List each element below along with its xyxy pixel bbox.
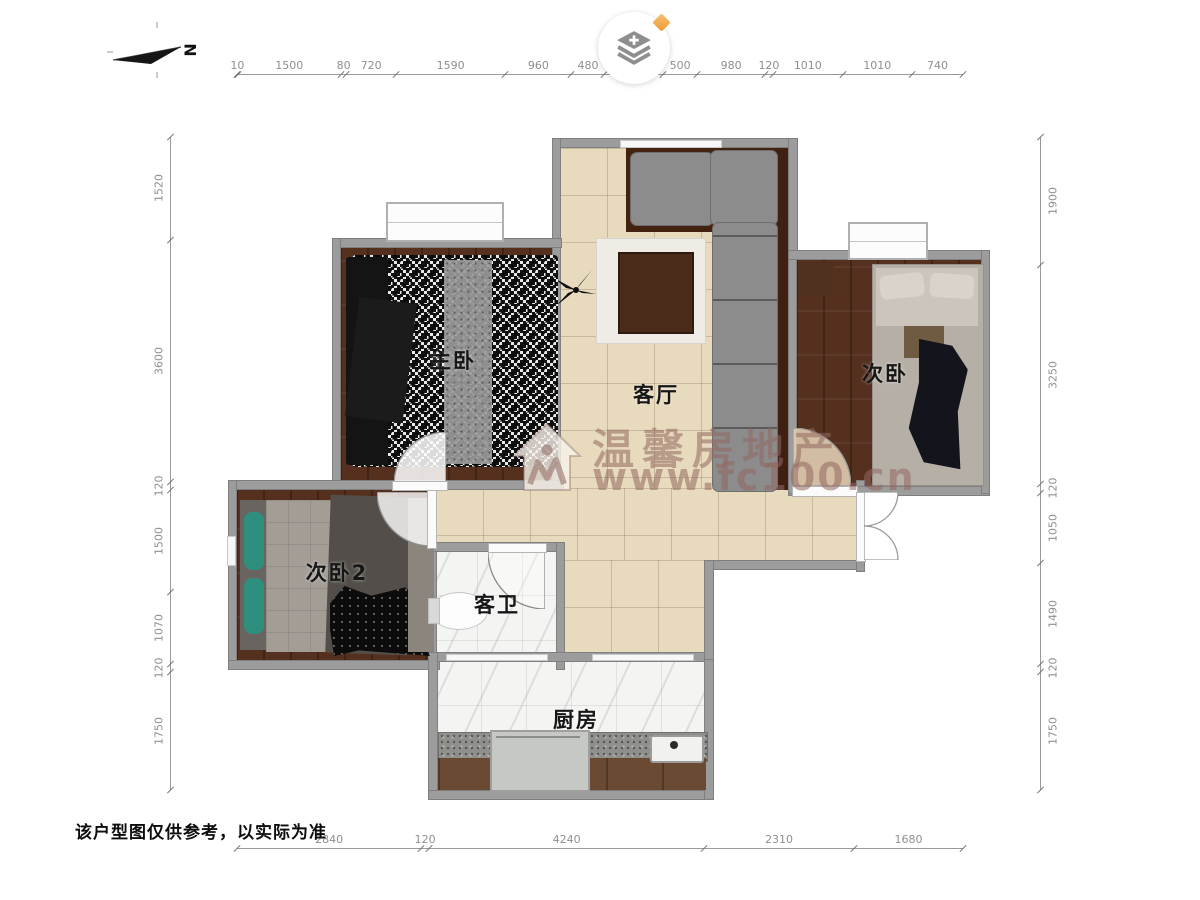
window: [592, 654, 694, 661]
pillow: [244, 512, 264, 570]
bedroom2-nightstand: [798, 262, 834, 296]
dimension-tick: [959, 845, 966, 852]
window: [227, 536, 236, 566]
window: [620, 140, 722, 148]
wall: [704, 560, 714, 660]
window: [848, 222, 928, 260]
coffee-table: [618, 252, 694, 334]
dimension-label: 3250: [1047, 361, 1060, 389]
dimension-label: 4240: [553, 833, 581, 846]
dimension-label: 1490: [1047, 600, 1060, 628]
room-label-bedroom3: 次卧2: [306, 557, 369, 587]
sofa-section: [630, 152, 714, 226]
door-arc-master: [394, 432, 446, 484]
watermark-house-icon: [508, 420, 586, 496]
dimension-label: 500: [670, 59, 691, 72]
dimension-label: 120: [1047, 657, 1060, 678]
dimension-label: 120: [758, 59, 779, 72]
dimension-label: 2310: [765, 833, 793, 846]
room-label-living-room: 客厅: [633, 379, 679, 409]
dimension-label: 10: [230, 59, 244, 72]
door-arc-bedroom3: [377, 492, 431, 546]
watermark-site: www.fc100.cn: [592, 458, 916, 498]
dimension-label: 1750: [1047, 717, 1060, 745]
room-label-bedroom2: 次卧: [862, 358, 908, 388]
wall: [332, 238, 341, 488]
room-label-master-bedroom: 主卧: [430, 345, 476, 375]
dimension-label: 120: [1047, 478, 1060, 499]
floor-plan-canvas: 温馨房地产 www.fc100.cn 主卧 客厅 次卧 次卧2 客卫 厨房 10…: [0, 0, 1200, 900]
dimension-label: 720: [361, 59, 382, 72]
dimension-label: 3600: [153, 347, 166, 375]
dimension-label: 1520: [153, 174, 166, 202]
kitchen-sink: [650, 735, 704, 763]
room-label-kitchen: 厨房: [553, 704, 599, 734]
svg-text:N: N: [181, 43, 200, 56]
pillow: [879, 272, 925, 300]
dimension-line-right: 19003250120105014901201750: [1036, 137, 1060, 790]
kitchen-appliance-handle: [496, 736, 580, 738]
wall: [228, 480, 237, 670]
window: [446, 654, 548, 661]
dimension-label: 1500: [153, 527, 166, 555]
wall: [788, 138, 798, 256]
entry-double-door-arc: [864, 526, 899, 560]
dimension-label: 980: [721, 59, 742, 72]
wall: [428, 652, 438, 800]
kitchen-faucet: [670, 741, 678, 749]
dimension-label: 1500: [275, 59, 303, 72]
dimension-label: 120: [153, 476, 166, 497]
dimension-label: 120: [415, 833, 436, 846]
dimension-line-bottom: 2840120424023101680: [237, 832, 963, 854]
wall: [228, 660, 440, 670]
dimension-label: 120: [153, 657, 166, 678]
dimension-label: 740: [927, 59, 948, 72]
dimension-label: 1050: [1047, 514, 1060, 542]
dimension-label: 1590: [437, 59, 465, 72]
window: [386, 202, 504, 242]
dimension-label: 1900: [1047, 187, 1060, 215]
dimension-label: 1070: [153, 614, 166, 642]
dimension-label: 1680: [895, 833, 923, 846]
pillow: [929, 272, 975, 299]
kitchen-appliance: [490, 730, 590, 792]
dimension-label: 1010: [794, 59, 822, 72]
wall: [704, 560, 865, 570]
door-leaf: [427, 490, 437, 549]
room-label-guest-bathroom: 客卫: [474, 589, 520, 619]
dimension-label: 1010: [863, 59, 891, 72]
dimension-tick: [167, 786, 174, 793]
ceiling-fan-icon: [552, 266, 600, 314]
door-leaf: [392, 481, 448, 491]
dining-nook-floor: [564, 560, 706, 660]
toilet-tank: [428, 598, 440, 624]
layers-plus-icon: [615, 29, 653, 67]
dimension-label: 960: [528, 59, 549, 72]
dimension-label: 480: [577, 59, 598, 72]
north-compass-icon: N: [105, 20, 215, 80]
dimension-label: 1750: [153, 717, 166, 745]
dimension-line-left: 15203600120150010701201750: [150, 137, 174, 790]
sofa-section: [710, 150, 778, 226]
disclaimer-text: 该户型图仅供参考，以实际为准: [75, 818, 327, 843]
dimension-tick: [1037, 786, 1044, 793]
wall: [556, 542, 565, 670]
door-leaf: [488, 543, 547, 553]
pillow: [244, 578, 264, 634]
dimension-tick: [959, 71, 966, 78]
